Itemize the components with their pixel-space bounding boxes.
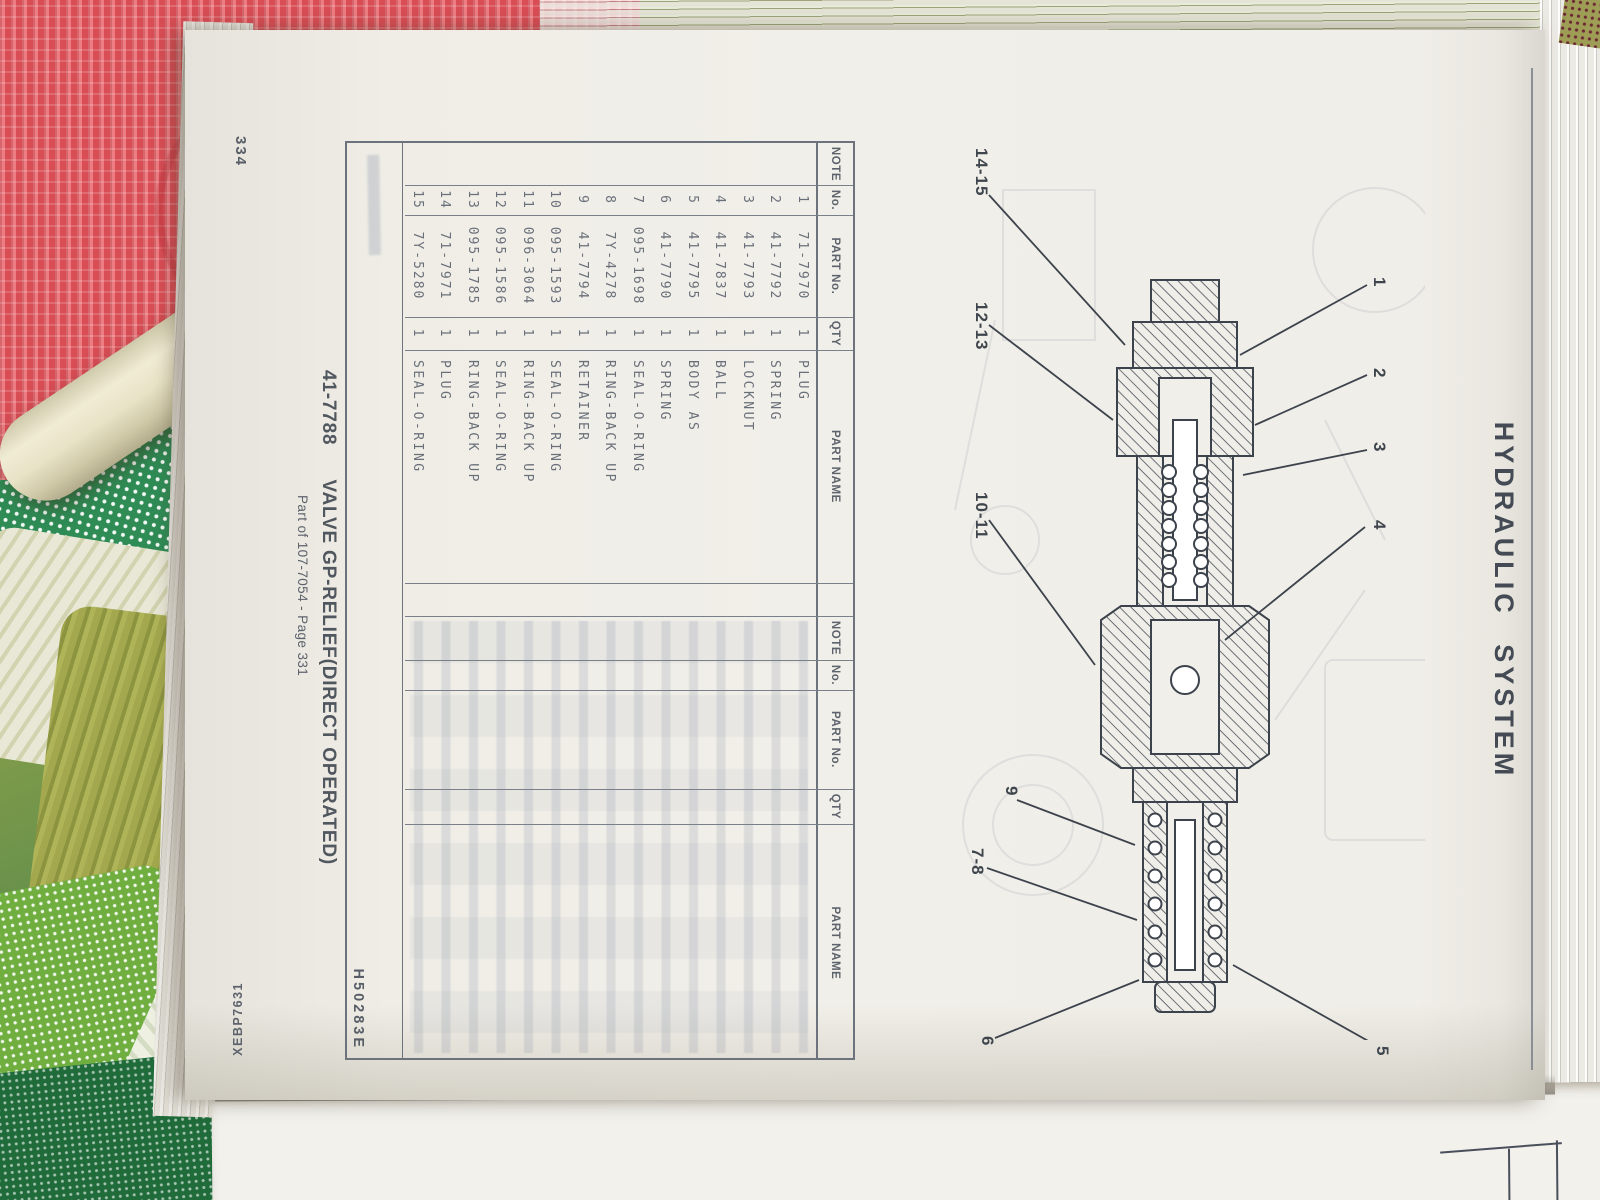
caption-title: VALVE GP-RELIEF(DIRECT OPERATED) (318, 479, 339, 865)
header-qty: QTY (818, 317, 853, 350)
header-part-no-2: PART No. (818, 690, 853, 789)
cell-part-no: 7Y-5280 (410, 215, 425, 317)
caption-part-number: 41-7788 (318, 370, 339, 445)
cell-no: 11 (520, 185, 535, 215)
cell-qty: 1 (630, 317, 645, 350)
cell-part-no: 095-1785 (465, 215, 480, 317)
facing-page-table-border (1440, 1142, 1562, 1154)
cell-part-no: 095-1593 (547, 215, 562, 317)
cell-qty: 1 (685, 317, 700, 350)
faint-print-stamp (367, 155, 381, 255)
cell-no: 4 (712, 185, 727, 215)
valve-figure: 1 2 3 4 5 6 7-8 9 10-11 12-13 14-15 (945, 120, 1425, 1040)
cell-qty: 1 (657, 317, 672, 350)
callout-6: 6 (977, 1036, 997, 1046)
cell-part-name: BALL (712, 350, 727, 583)
cell-qty: 1 (767, 317, 782, 350)
valve-cross-section-drawing (945, 120, 1425, 1040)
header-note-2: NOTE (818, 616, 853, 660)
cell-qty: 1 (520, 317, 535, 350)
page-title: HYDRAULIC SYSTEM (1488, 141, 1519, 1060)
cell-no: 1 (795, 185, 810, 215)
cell-qty: 1 (547, 317, 562, 350)
header-group-separator (818, 583, 853, 616)
callout-3: 3 (1369, 442, 1389, 452)
cell-no: 15 (410, 185, 425, 215)
facing-page-table-border (1508, 1149, 1511, 1200)
callout-12-13: 12-13 (971, 302, 991, 350)
cell-part-name: RETAINER (575, 350, 590, 583)
corner-fabric-patch (1559, 0, 1600, 49)
callout-2: 2 (1369, 368, 1389, 378)
cell-part-no: 7Y-4278 (602, 215, 617, 317)
caption-subtitle: Part of 107-7054 - Page 331 (295, 495, 310, 676)
cell-no: 10 (547, 185, 562, 215)
header-note: NOTE (818, 143, 853, 185)
cell-part-name: SPRING (657, 350, 672, 583)
callout-14-15: 14-15 (971, 148, 991, 196)
cell-no: 7 (630, 185, 645, 215)
cell-part-no: 096-3064 (520, 215, 535, 317)
cell-no: 3 (740, 185, 755, 215)
cell-qty: 1 (740, 317, 755, 350)
callout-1: 1 (1369, 277, 1389, 287)
cell-part-name: SPRING (767, 350, 782, 583)
callout-10-11: 10-11 (971, 492, 991, 540)
cell-qty: 1 (602, 317, 617, 350)
cell-qty: 1 (492, 317, 507, 350)
cell-part-no: 095-1698 (630, 215, 645, 317)
header-rule-line (1531, 68, 1533, 1070)
callout-9: 9 (1001, 786, 1021, 796)
cell-part-name: SEAL-O-RING (547, 350, 562, 583)
photo-scene: HYDRAULIC SYSTEM (0, 0, 1600, 1200)
callout-5: 5 (1372, 1046, 1392, 1056)
cell-part-no: 41-7793 (740, 215, 755, 317)
cell-no: 2 (767, 185, 782, 215)
header-part-name-2: PART NAME (818, 824, 853, 1062)
bleed-through-ghost-text (410, 621, 808, 1053)
cell-part-no: 41-7837 (712, 215, 727, 317)
cell-part-name: SEAL-O-RING (410, 350, 425, 583)
cell-qty: 1 (410, 317, 425, 350)
cell-qty: 1 (575, 317, 590, 350)
cell-no: 6 (657, 185, 672, 215)
cell-part-name: BODY AS (685, 350, 700, 583)
page-number: 334 (232, 136, 249, 167)
cell-part-no: 41-7792 (767, 215, 782, 317)
cell-part-name: RING-BACK UP (465, 350, 480, 583)
manual-page: HYDRAULIC SYSTEM (185, 30, 1545, 1100)
cell-part-name: SEAL-O-RING (492, 350, 507, 583)
cell-part-no: 095-1586 (492, 215, 507, 317)
cell-part-name: RING-BACK UP (602, 350, 617, 583)
header-no-2: No. (818, 660, 853, 690)
cell-part-name: SEAL-O-RING (630, 350, 645, 583)
cell-part-name: LOCKNUT (740, 350, 755, 583)
cell-qty: 1 (465, 317, 480, 350)
cell-qty: 1 (712, 317, 727, 350)
book-page-edges-right (1540, 0, 1600, 1200)
header-no: No. (818, 185, 853, 215)
cell-part-no: 41-7790 (657, 215, 672, 317)
parts-table-body: 171-79701PLUG241-77921SPRING341-77931LOC… (403, 143, 816, 1058)
form-code: XEBP7631 (231, 982, 245, 1056)
cell-qty: 1 (795, 317, 810, 350)
valve-assembly (1101, 280, 1269, 1012)
cell-part-name: RING-BACK UP (520, 350, 535, 583)
cell-part-no: 71-7970 (795, 215, 810, 317)
cell-no: 8 (602, 185, 617, 215)
parts-table-footer: H50283E (344, 143, 403, 1058)
cell-part-no: 41-7794 (575, 215, 590, 317)
cell-qty: 1 (437, 317, 452, 350)
callout-4: 4 (1369, 520, 1389, 530)
cell-no: 13 (465, 185, 480, 215)
figure-caption: 41-7788 VALVE GP-RELIEF(DIRECT OPERATED) (317, 141, 339, 1060)
parts-table: NOTE No. PART No. QTY PART NAME NOTE No.… (345, 141, 855, 1060)
cell-no: 12 (492, 185, 507, 215)
cell-no: 5 (685, 185, 700, 215)
cell-part-no: 41-7795 (685, 215, 700, 317)
cell-part-name: PLUG (795, 350, 810, 583)
header-qty-2: QTY (818, 789, 853, 824)
facing-page-table-border (1556, 1140, 1559, 1200)
cell-no: 9 (575, 185, 590, 215)
cell-part-name: PLUG (437, 350, 452, 583)
header-part-no: PART No. (818, 215, 853, 317)
header-part-name: PART NAME (818, 350, 853, 583)
parts-table-header: NOTE No. PART No. QTY PART NAME NOTE No.… (816, 143, 853, 1058)
cell-no: 14 (437, 185, 452, 215)
figure-code: H50283E (350, 969, 366, 1050)
callout-7-8: 7-8 (967, 848, 987, 876)
cell-part-no: 71-7971 (437, 215, 452, 317)
